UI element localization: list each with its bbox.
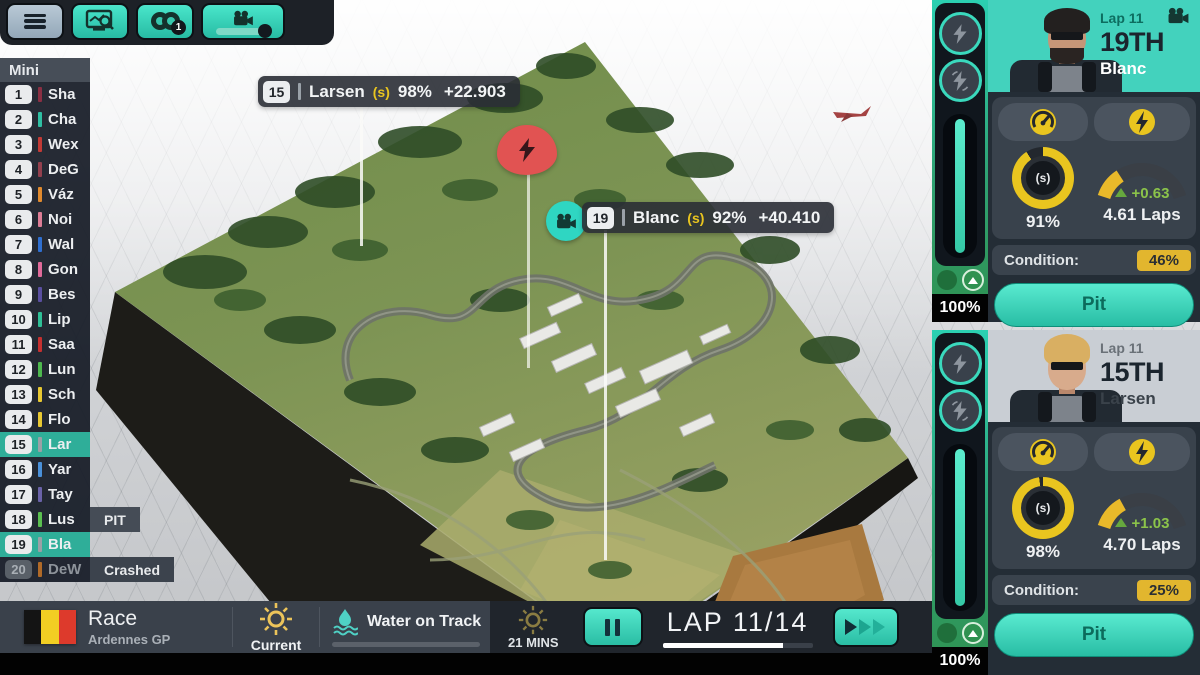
ers-charge-slider[interactable] [943,114,977,258]
sun-forecast-icon [518,605,548,635]
team-bar [38,312,42,327]
team-bar [38,537,42,552]
race-screen: 15 Larsen (s) 98% +22.903 19 Blanc (s) 9… [0,0,1200,675]
lightning-icon [951,352,969,376]
driver-header[interactable]: Lap 11 15TH Larsen [988,330,1200,422]
ers-charge-slider[interactable] [943,444,977,611]
speedometer-icon [1028,437,1058,467]
sun-icon [259,602,293,636]
position-chip: 19 [5,535,32,554]
label-pole [360,104,363,246]
driver-panel-blanc: 100% Lap 11 19TH Blanc [932,0,1200,322]
team-bar [38,187,42,202]
position-chip: 3 [5,135,32,154]
position-chip: 5 [5,185,32,204]
position-chip: 16 [5,460,32,479]
tyre-mode-button[interactable] [998,433,1088,471]
standings-row[interactable]: 4DeG [0,157,90,182]
lap-counter: LAP 11/14 [663,607,813,648]
driver-abbrev: Saa [48,336,75,353]
standings-row[interactable]: 13Sch [0,382,90,407]
forecast-time: 21 MINS [508,635,559,650]
pause-icon [605,619,620,636]
ers-toggle-off[interactable] [937,270,957,290]
menu-button[interactable] [6,3,64,40]
sunglasses [1051,362,1083,370]
hybrid-bolt-icon [950,69,970,93]
standings-row-selected[interactable]: 19Bla [0,532,90,557]
team-bar [38,112,42,127]
energy-icon [1127,107,1157,137]
crashed-status-tag: Crashed [90,557,174,582]
standings-row[interactable]: 11Saa [0,332,90,357]
tyres-button[interactable]: 1 [136,3,194,40]
pit-button[interactable]: Pit [994,283,1194,327]
team-bar [298,83,301,100]
standings-row[interactable]: 8Gon [0,257,90,282]
position-chip: 20 [5,560,32,579]
standings-row[interactable]: 12Lun [0,357,90,382]
position-chip: 10 [5,310,32,329]
ers-column: 100% [932,0,988,322]
standings-panel: Mini 1Sha 2Cha 3Wex 4DeG 5Váz 6Noi 7Wal … [0,58,90,582]
label-pole [604,230,607,560]
toolbar: 1 [0,0,334,45]
driver-abbrev: Tay [48,486,73,503]
fuel-up-arrow [1115,182,1127,197]
position-chip: 7 [5,235,32,254]
menu-icon [24,14,46,29]
incident-marker[interactable] [497,125,557,175]
team-bar [38,462,42,477]
driver-abbrev: Cha [48,111,76,128]
driver-abbrev: Sha [48,86,76,103]
fast-forward-button[interactable] [833,607,899,647]
incident-pole [527,168,530,368]
gap-time: +22.903 [444,82,506,102]
water-level-bar [332,642,480,647]
team-bar [38,562,42,577]
condition-badge: 46% [1137,250,1191,271]
team-bar [38,87,42,102]
camera-icon [230,10,256,27]
session-name: Race [88,607,170,631]
driver-abbrev: Bla [48,536,71,553]
belgium-flag [24,610,76,644]
race-position: 19TH [1100,27,1186,58]
tyre-percent: 92% [712,208,746,228]
position-chip: 18 [5,510,32,529]
tyre-mode-button[interactable] [998,103,1088,141]
tyres-badge: 1 [171,20,186,35]
map-driver-label-blanc[interactable]: 19 Blanc (s) 92% +40.410 [582,202,834,233]
session-info: Race Ardennes GP [0,601,232,653]
camera-icon [555,213,577,230]
race-position: 15TH [1100,357,1186,388]
car-gauges: (s) 98% [992,427,1196,569]
gap-time: +40.410 [758,208,820,228]
driver-abbrev: Bes [48,286,76,303]
driver-abbrev: Lar [48,436,71,453]
ers-percent: 100% [932,647,988,675]
position-chip: 2 [5,110,32,129]
team-bar [38,137,42,152]
condition-row: Condition: 25% [992,575,1196,605]
condition-badge: 25% [1137,580,1191,601]
lightning-icon [951,22,969,46]
tyre-compound: (s) [687,210,704,226]
tyre-compound-label: (s) [1021,486,1065,530]
pit-button[interactable]: Pit [994,613,1194,657]
team-bar [38,387,42,402]
camera-zoom-slider[interactable] [216,28,270,35]
camera-button[interactable] [201,3,285,40]
telemetry-monitor-icon [85,9,115,33]
ers-toggle-off[interactable] [937,623,957,643]
position-chip: 11 [5,335,32,354]
driver-abbrev: Váz [48,186,74,203]
team-bar [38,287,42,302]
standings-row[interactable]: 9Bes [0,282,90,307]
ers-deploy-button[interactable] [962,269,984,291]
standings-row[interactable]: 7Wal [0,232,90,257]
ers-deploy-button[interactable] [962,622,984,644]
fuel-up-arrow [1115,512,1127,527]
water-label: Water on Track [367,613,481,631]
driver-abbrev: Wal [48,236,74,253]
race-controls: 21 MINS LAP 11/14 [490,601,932,653]
standings-row[interactable]: 2Cha [0,107,90,132]
energy-icon [1127,437,1157,467]
team-bar [38,412,42,427]
driver-abbrev: Lip [48,311,71,328]
standings-title: Mini [0,58,90,82]
hybrid-mode-button[interactable] [939,59,982,102]
driver-abbrev: Yar [48,461,71,478]
driver-panel-larsen: 100% Lap 11 15TH Larsen [932,330,1200,675]
standings-row[interactable]: 14Flo [0,407,90,432]
tyre-wear-ring: (s) [1012,477,1074,539]
engine-mode-button[interactable] [1094,103,1190,141]
ers-column: 100% [932,330,988,675]
standings-row[interactable]: 17Tay [0,482,90,507]
driver-abbrev: Noi [48,211,72,228]
push-mode-button[interactable] [939,342,982,385]
position-chip: 15 [263,81,290,103]
ers-charge-fill [955,449,965,606]
car-gauges: (s) 91% [992,97,1196,239]
broadcast-button[interactable] [71,3,129,40]
standings-row[interactable]: 16Yar [0,457,90,482]
position-chip: 9 [5,285,32,304]
driver-abbrev: Flo [48,411,71,428]
position-chip: 6 [5,210,32,229]
lap-number: Lap 11 [1100,10,1186,26]
position-chip: 8 [5,260,32,279]
standings-row[interactable]: 20DeWCrashed [0,557,90,582]
water-icon [332,608,358,636]
driver-name: Blanc [1100,59,1186,79]
pit-status-tag: PIT [90,507,140,532]
team-bar [622,209,625,226]
bottom-bar: Race Ardennes GP Current [0,601,932,653]
driver-abbrev: Sch [48,386,76,403]
event-name: Ardennes GP [88,632,170,647]
hybrid-mode-button[interactable] [939,389,982,432]
camera-marker[interactable] [546,201,586,241]
standings-row-selected[interactable]: 15Lar [0,432,90,457]
speedometer-icon [1028,107,1058,137]
ers-charge-fill [955,119,965,253]
fuel-delta: +0.63 [1132,185,1170,202]
driver-abbrev: Gon [48,261,78,278]
tyre-compound: (s) [373,84,390,100]
tyre-compound-label: (s) [1021,156,1065,200]
driver-abbrev: DeW [48,561,81,578]
condition-label: Condition: [1004,582,1079,599]
driver-name: Larsen [309,82,365,102]
fuel-laps: 4.70 Laps [1103,535,1181,555]
driver-name: Larsen [1100,389,1186,409]
position-chip: 12 [5,360,32,379]
team-bar [38,337,42,352]
position-chip: 4 [5,160,32,179]
tyre-wear-value: 91% [1026,212,1060,232]
lightning-icon [516,137,538,163]
position-chip: 14 [5,410,32,429]
weather-forecast[interactable]: 21 MINS [508,605,559,650]
ers-percent: 100% [932,294,988,322]
hybrid-bolt-icon [950,399,970,423]
lap-progress-track [663,643,813,648]
airplane [833,106,871,122]
team-bar [38,487,42,502]
lap-text: LAP 11/14 [667,607,809,638]
team-bar [38,212,42,227]
tyre-percent: 98% [398,82,432,102]
driver-panel-body: Lap 11 19TH Blanc [988,0,1200,322]
team-bar [38,512,42,527]
engine-mode-button[interactable] [1094,433,1190,471]
standings-row[interactable]: 5Váz [0,182,90,207]
position-chip: 15 [5,435,32,454]
team-bar [38,362,42,377]
tyre-wear-value: 98% [1026,542,1060,562]
driver-abbrev: Wex [48,136,79,153]
water-on-track[interactable]: Water on Track [320,601,490,653]
up-arrow-icon [968,272,978,284]
standings-row[interactable]: 18LusPIT [0,507,90,532]
team-bar [38,437,42,452]
fast-forward-icon [845,619,887,635]
team-bar [38,162,42,177]
pause-button[interactable] [583,607,643,647]
standings-row[interactable]: 6Noi [0,207,90,232]
position-chip: 13 [5,385,32,404]
team-bar [38,262,42,277]
lap-progress-fill [663,643,783,648]
lap-number: Lap 11 [1100,340,1186,356]
fuel-laps: 4.61 Laps [1103,205,1181,225]
standings-row[interactable]: 3Wex [0,132,90,157]
standings-row[interactable]: 10Lip [0,307,90,332]
condition-row: Condition: 46% [992,245,1196,275]
push-mode-button[interactable] [939,12,982,55]
current-weather[interactable]: Current [233,601,319,653]
driver-abbrev: Lun [48,361,76,378]
map-driver-label-larsen[interactable]: 15 Larsen (s) 98% +22.903 [258,76,520,107]
fuel-delta: +1.03 [1132,515,1170,532]
position-chip: 17 [5,485,32,504]
current-weather-label: Current [251,637,302,653]
driver-header[interactable]: Lap 11 19TH Blanc [988,0,1200,92]
driver-abbrev: DeG [48,161,79,178]
tyre-wear-ring: (s) [1012,147,1074,209]
standings-row[interactable]: 1Sha [0,82,90,107]
driver-name: Blanc [633,208,679,228]
team-bar [38,237,42,252]
position-chip: 1 [5,85,32,104]
up-arrow-icon [968,625,978,637]
position-chip: 19 [587,207,614,229]
condition-label: Condition: [1004,252,1079,269]
slider-knob[interactable] [258,24,272,38]
sunglasses [1051,32,1083,40]
driver-abbrev: Lus [48,511,75,528]
driver-panel-body: Lap 11 15TH Larsen [988,330,1200,675]
